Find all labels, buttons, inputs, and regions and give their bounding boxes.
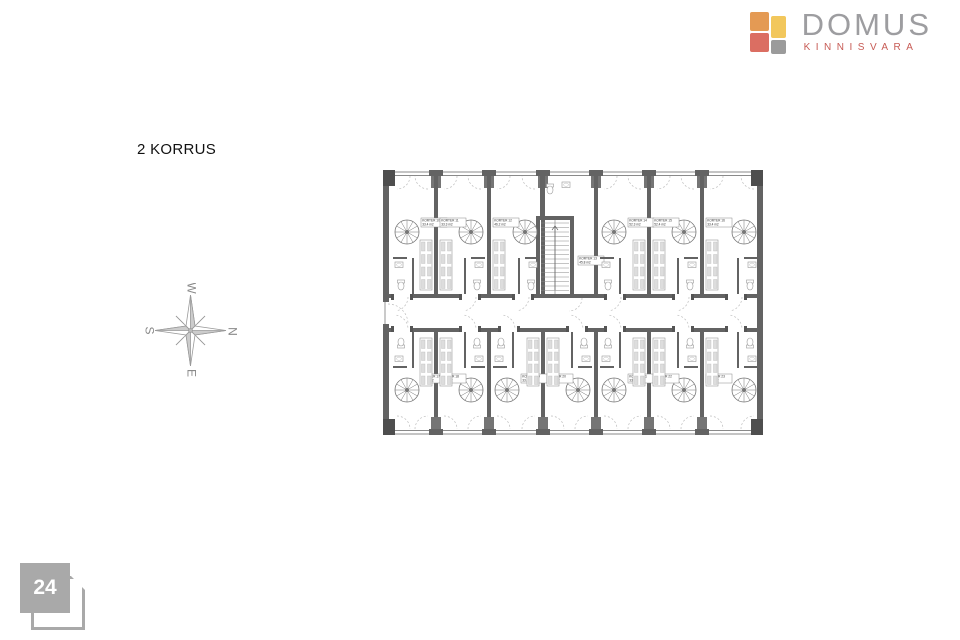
door-jamb [410, 326, 413, 332]
kitchen-appliance [549, 364, 553, 373]
bath-wall [744, 257, 758, 259]
door-jamb [604, 326, 607, 332]
bath-wall [412, 332, 414, 368]
pier-top-cap [536, 170, 550, 176]
page-number: 24 [20, 563, 70, 613]
door-swing-arc [710, 416, 723, 429]
spiral-stair-center [469, 388, 473, 392]
spiral-stair-center [469, 230, 473, 234]
door-jamb [691, 326, 694, 332]
entrance-opening [382, 302, 390, 324]
kitchen-appliance [448, 255, 452, 264]
party-wall-top [594, 176, 598, 294]
kitchen-appliance [448, 364, 452, 373]
door-jamb [478, 294, 481, 300]
party-wall-bottom [541, 328, 545, 417]
spiral-stair-center [405, 388, 409, 392]
door-swing-arc [681, 416, 694, 429]
door-swing-arc [497, 176, 510, 189]
party-wall-bottom [700, 328, 704, 417]
entry-opening [462, 328, 478, 332]
kitchen-appliance [655, 364, 659, 373]
logo-square-gray [771, 40, 786, 54]
stair-core-wall [536, 216, 574, 220]
kitchen-appliance [661, 255, 665, 264]
spiral-stair-center [682, 388, 686, 392]
bath-wall [619, 258, 621, 294]
kitchen-appliance [714, 364, 718, 373]
corner [383, 419, 395, 435]
pier-top-cap [642, 170, 656, 176]
kitchen-appliance [448, 376, 452, 385]
kitchen-appliance [442, 280, 446, 289]
door-swing-arc [397, 176, 410, 189]
kitchen-appliance [714, 242, 718, 251]
kitchen-appliance [714, 255, 718, 264]
door-jamb [478, 326, 481, 332]
door-swing-arc [657, 416, 670, 429]
corner [751, 170, 763, 186]
door-swing-arc [604, 416, 617, 429]
kitchen-appliance [641, 267, 645, 276]
kitchen-appliance [641, 376, 645, 385]
kitchen-appliance [714, 280, 718, 289]
apartment-area: 33.4 m2 [422, 223, 434, 227]
kitchen-appliance [714, 267, 718, 276]
party-wall-top [434, 176, 438, 294]
kitchen-appliance [495, 280, 499, 289]
sink [475, 356, 483, 362]
logo-name: DOMUS [802, 10, 932, 40]
door-jamb [725, 326, 728, 332]
entry-opening [394, 328, 410, 332]
kitchen-appliance [428, 340, 432, 349]
kitchen-appliance [501, 255, 505, 264]
apartment-label: KORTER 1246.2 m2 [493, 218, 519, 227]
kitchen-appliance [635, 352, 639, 361]
door-swing-arc [569, 298, 582, 311]
sink [395, 356, 403, 362]
kitchen-appliance [428, 280, 432, 289]
kitchen-appliance [641, 352, 645, 361]
door-jamb [459, 294, 462, 300]
kitchen-appliance [708, 376, 712, 385]
kitchen-appliance [529, 340, 533, 349]
kitchen-appliance [661, 352, 665, 361]
bath-wall [464, 332, 466, 368]
pier-top-cap [589, 170, 603, 176]
bath-wall [512, 332, 514, 368]
sink [582, 356, 590, 362]
toilet [528, 282, 534, 290]
sink [602, 262, 610, 268]
bath-wall [578, 366, 592, 368]
kitchen-appliance [635, 280, 639, 289]
kitchen-appliance [661, 280, 665, 289]
kitchen-appliance [529, 352, 533, 361]
apartment-area: 45.8 m2 [579, 261, 591, 265]
kitchen-appliance [655, 340, 659, 349]
door-swing-arc [396, 315, 408, 329]
toilet [474, 338, 480, 346]
kitchen-appliance [555, 376, 559, 385]
toilet [747, 282, 753, 290]
door-jamb [691, 294, 694, 300]
kitchen-appliance [635, 267, 639, 276]
bath-wall [677, 258, 679, 294]
kitchen-appliance [495, 242, 499, 251]
kitchen-appliance [661, 376, 665, 385]
sink [395, 262, 403, 268]
kitchen-appliance [428, 255, 432, 264]
door-jamb [585, 326, 588, 332]
entry-opening [675, 294, 691, 298]
bath-wall [471, 366, 485, 368]
apartment-label: KORTER 1133.3 m2 [440, 218, 466, 227]
bath-wall [684, 366, 698, 368]
bath-wall [571, 332, 573, 368]
sink [562, 182, 570, 188]
door-swing-arc [522, 416, 535, 429]
kitchen-appliance [442, 376, 446, 385]
logo-subtitle: KINNISVARA [804, 42, 932, 53]
kitchen-appliance [661, 267, 665, 276]
kitchen-appliance [655, 267, 659, 276]
door-swing-arc [628, 176, 641, 189]
door-swing-arc [575, 416, 588, 429]
door-jamb [725, 294, 728, 300]
kitchen-appliance [661, 364, 665, 373]
door-swing-arc [468, 416, 481, 429]
kitchen-appliance [635, 340, 639, 349]
party-wall-top [647, 176, 651, 294]
logo-icon [750, 10, 792, 54]
toilet [605, 338, 611, 346]
entry-opening [394, 294, 410, 298]
door-jamb [672, 326, 675, 332]
floor-plan: KORTER 1033.4 m2KORTER 1133.3 m2KORTER 1… [378, 160, 778, 450]
pier-bottom-cap [589, 429, 603, 435]
kitchen-appliance [714, 352, 718, 361]
door-swing-arc [551, 416, 564, 429]
spiral-stair-center [742, 230, 746, 234]
kitchen-appliance [442, 267, 446, 276]
party-wall-bottom [594, 328, 598, 417]
pier-bottom-cap [482, 429, 496, 435]
sink [688, 356, 696, 362]
kitchen-appliance [635, 364, 639, 373]
bath-wall [600, 366, 614, 368]
corner [383, 170, 395, 186]
door-swing-arc [468, 176, 481, 189]
logo-square-red [750, 33, 769, 52]
spiral-stair-center [405, 230, 409, 234]
door-swing-arc [503, 315, 515, 329]
entry-opening [515, 294, 531, 298]
bath-wall [412, 258, 414, 294]
spiral-stair-center [682, 230, 686, 234]
entry-opening [675, 328, 691, 332]
door-jamb [566, 326, 569, 332]
kitchen-appliance [448, 352, 452, 361]
kitchen-appliance [448, 242, 452, 251]
door-swing-arc [444, 416, 457, 429]
sink [748, 262, 756, 268]
toilet [687, 338, 693, 346]
entry-opening [728, 328, 744, 332]
door-jamb [410, 294, 413, 300]
bath-wall [737, 332, 739, 368]
kitchen-appliance [714, 340, 718, 349]
kitchen-appliance [655, 280, 659, 289]
kitchen-appliance [641, 242, 645, 251]
pier-bottom-cap [642, 429, 656, 435]
kitchen-appliance [428, 267, 432, 276]
apartment-area: 33.3 m2 [441, 223, 453, 227]
spiral-stair-center [523, 230, 527, 234]
kitchen-appliance [661, 340, 665, 349]
kitchen-appliance [428, 364, 432, 373]
kitchen-appliance [555, 364, 559, 373]
door-jamb [623, 294, 626, 300]
door-swing-arc [415, 176, 428, 189]
compass-label-top: W [185, 283, 199, 294]
bath-wall [518, 258, 520, 294]
apartment-label: KORTER 1552.4 m2 [653, 218, 679, 227]
door-swing-arc [571, 315, 583, 329]
kitchen-appliance [422, 255, 426, 264]
door-swing-arc [677, 315, 689, 329]
toilet [398, 282, 404, 290]
kitchen-appliance [555, 352, 559, 361]
kitchen-appliance [442, 255, 446, 264]
door-swing-arc [415, 416, 428, 429]
apartment-area: 52.3 m2 [629, 223, 641, 227]
kitchen-appliance [501, 280, 505, 289]
door-jamb [744, 326, 747, 332]
kitchen-appliance [422, 364, 426, 373]
kitchen-appliance [641, 280, 645, 289]
kitchen-appliance [655, 376, 659, 385]
door-swing-arc [628, 416, 641, 429]
wall-right [757, 170, 763, 435]
party-wall-bottom [434, 328, 438, 417]
logo-square-orange [750, 12, 769, 31]
kitchen-appliance [535, 376, 539, 385]
kitchen-appliance [448, 280, 452, 289]
kitchen-appliance [422, 267, 426, 276]
sink [688, 262, 696, 268]
toilet [605, 282, 611, 290]
kitchen-appliance [714, 376, 718, 385]
party-wall-top [700, 176, 704, 294]
kitchen-appliance [448, 267, 452, 276]
kitchen-appliance [708, 255, 712, 264]
sink [602, 356, 610, 362]
door-jamb [498, 326, 501, 332]
kitchen-appliance [661, 242, 665, 251]
entry-opening [462, 294, 478, 298]
toilet [581, 338, 587, 346]
spiral-stair-center [612, 388, 616, 392]
kitchen-appliance [422, 376, 426, 385]
compass-rose: W N E S [143, 283, 238, 378]
door-swing-arc [730, 297, 742, 311]
bath-wall [525, 257, 539, 259]
kitchen-appliance [635, 376, 639, 385]
bath-wall [744, 366, 758, 368]
door-swing-arc [497, 416, 510, 429]
compass-label-left: S [143, 326, 157, 334]
door-swing-arc [677, 297, 689, 311]
page-title: 2 KORRUS [137, 141, 216, 158]
kitchen-appliance [655, 255, 659, 264]
door-jamb [623, 326, 626, 332]
corner [751, 419, 763, 435]
kitchen-appliance [422, 242, 426, 251]
bath-wall [619, 332, 621, 368]
spiral-stair-center [505, 388, 509, 392]
bath-wall [393, 366, 407, 368]
kitchen-appliance [495, 255, 499, 264]
kitchen-appliance [529, 364, 533, 373]
page-number-badge: 24 [20, 563, 90, 633]
bath-wall [677, 332, 679, 368]
kitchen-appliance [549, 340, 553, 349]
floor-plan-svg: KORTER 1033.4 m2KORTER 1133.3 m2KORTER 1… [378, 160, 778, 450]
kitchen-appliance [422, 280, 426, 289]
apartment-label: KORTER 1633.4 m2 [706, 218, 732, 227]
kitchen-appliance [535, 352, 539, 361]
sink [495, 356, 503, 362]
door-jamb [672, 294, 675, 300]
compass-label-bottom: E [185, 369, 199, 377]
toilet [547, 186, 553, 194]
door-jamb [744, 294, 747, 300]
party-wall-bottom [647, 328, 651, 417]
door-jamb [391, 326, 394, 332]
core-bath-wall [540, 176, 543, 216]
kitchen-appliance [442, 352, 446, 361]
stair-direction-arrow [552, 226, 558, 290]
kitchen-appliance [708, 242, 712, 251]
bath-wall [393, 257, 407, 259]
entry-opening [569, 328, 585, 332]
kitchen-appliance [529, 376, 533, 385]
pier-top-cap [482, 170, 496, 176]
pier-bottom-cap [695, 429, 709, 435]
spiral-stair-center [742, 388, 746, 392]
kitchen-appliance [535, 340, 539, 349]
door-swing-arc [710, 176, 723, 189]
door-jamb [531, 294, 534, 300]
toilet [398, 338, 404, 346]
door-swing-arc [604, 176, 617, 189]
compass-label-right: N [226, 327, 239, 336]
bath-wall [600, 257, 614, 259]
door-swing-arc [517, 297, 529, 311]
sink [748, 356, 756, 362]
door-jamb [517, 326, 520, 332]
door-jamb [512, 294, 515, 300]
door-jamb [391, 294, 394, 300]
kitchen-appliance [422, 340, 426, 349]
kitchen-appliance [549, 376, 553, 385]
kitchen-appliance [641, 340, 645, 349]
entry-opening [728, 294, 744, 298]
kitchen-appliance [708, 280, 712, 289]
kitchen-appliance [428, 376, 432, 385]
bath-wall [684, 257, 698, 259]
bath-wall [471, 257, 485, 259]
logo-square-yellow [771, 16, 786, 38]
entry-opening [501, 328, 517, 332]
door-swing-arc [396, 297, 408, 311]
toilet [687, 282, 693, 290]
kitchen-appliance [635, 255, 639, 264]
kitchen-appliance [708, 267, 712, 276]
apartment-area: 52.4 m2 [654, 223, 666, 227]
party-wall-top [487, 176, 491, 294]
toilet [474, 282, 480, 290]
kitchen-appliance [428, 242, 432, 251]
bath-wall [493, 366, 507, 368]
kitchen-appliance [549, 352, 553, 361]
door-jamb [604, 294, 607, 300]
kitchen-appliance [708, 340, 712, 349]
kitchen-appliance [641, 255, 645, 264]
apartment-label: KORTER 1452.3 m2 [628, 218, 654, 227]
kitchen-appliance [448, 340, 452, 349]
pier-top-cap [695, 170, 709, 176]
kitchen-appliance [641, 364, 645, 373]
apartment-area: 46.2 m2 [494, 223, 506, 227]
corridor-wall-top [389, 294, 762, 298]
door-swing-arc [609, 297, 621, 311]
kitchen-appliance [501, 267, 505, 276]
door-swing-arc [657, 176, 670, 189]
toilet [747, 338, 753, 346]
company-logo: DOMUS KINNISVARA [750, 10, 932, 54]
sink [529, 262, 537, 268]
door-jamb [459, 326, 462, 332]
party-wall-bottom [487, 328, 491, 417]
toilet [498, 338, 504, 346]
door-swing-arc [444, 176, 457, 189]
kitchen-appliance [535, 364, 539, 373]
door-swing-arc [388, 304, 408, 324]
spiral-stair-center [612, 230, 616, 234]
pier-bottom-cap [536, 429, 550, 435]
door-swing-arc [464, 315, 476, 329]
door-swing-arc [522, 176, 535, 189]
sink [475, 262, 483, 268]
kitchen-appliance [635, 242, 639, 251]
kitchen-appliance [708, 364, 712, 373]
kitchen-appliance [442, 364, 446, 373]
entry-opening [607, 328, 623, 332]
door-swing-arc [464, 297, 476, 311]
pier-bottom-cap [429, 429, 443, 435]
kitchen-appliance [442, 340, 446, 349]
kitchen-appliance [442, 242, 446, 251]
pier-top-cap [429, 170, 443, 176]
door-swing-arc [730, 315, 742, 329]
kitchen-appliance [655, 242, 659, 251]
kitchen-appliance [428, 352, 432, 361]
kitchen-appliance [495, 267, 499, 276]
door-swing-arc [397, 416, 410, 429]
